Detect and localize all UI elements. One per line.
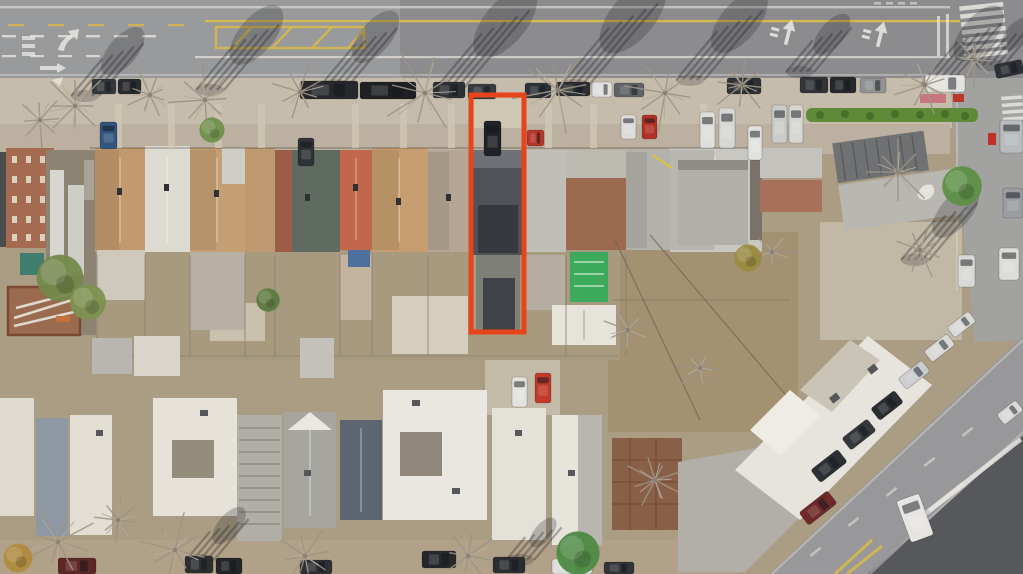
roof-gray-1 [524,150,566,252]
green-shed [570,252,608,302]
green-tree [942,166,982,206]
roof-tan-3 [245,148,275,252]
corner-roof-salmon [760,180,822,212]
parked-car [642,115,657,139]
parked-car [958,255,975,287]
green-tree [199,117,224,142]
parked-car [216,558,242,574]
parked-car [300,560,332,574]
parked-car [719,108,735,148]
trailer [50,170,64,265]
left-brick-building [0,148,54,248]
parked-car [484,121,501,156]
parked-car [1003,188,1023,218]
parked-car [789,105,803,143]
parked-car [700,112,715,148]
parked-car [800,77,828,93]
red-corner-object [953,94,964,102]
rowhouse-roofs [90,146,762,255]
parked-car [118,79,141,94]
parked-car [58,558,96,574]
vacant-lot [608,232,798,432]
parked-car [830,77,856,93]
parked-car [748,126,762,160]
dark-shed [483,278,515,330]
rust-flat-roof [612,438,682,530]
parked-car [772,105,787,143]
lane-text-marks [22,36,35,56]
green-tree [735,245,762,272]
parked-car [185,556,213,573]
blue-tarp [348,250,370,267]
parked-car [92,79,116,94]
parked-car [493,557,525,573]
curb-line-top [0,6,950,8]
parked-car [614,83,644,97]
parked-car [535,373,551,403]
aerial-scene [0,0,1023,574]
parked-car [592,82,612,97]
parked-car [621,115,636,139]
hydrant [988,133,996,145]
parked-car [860,78,886,93]
aerial-photo [0,0,1023,574]
corner-roof-gray [678,160,748,245]
white-lane-line [195,56,950,58]
parked-car [298,138,314,166]
parked-car [100,122,117,149]
green-tree [256,288,279,311]
parked-car [527,130,544,146]
green-tree [70,284,106,320]
eave-shadow [90,147,762,149]
parked-car [512,377,527,407]
parked-car [604,562,634,574]
parked-car [999,248,1019,280]
blue-flat-roof [36,418,68,536]
parked-car [360,82,416,99]
green-tree [556,531,599,574]
right-driveway-apron [820,222,962,340]
parked-car [1000,120,1023,153]
green-tree [4,544,33,573]
patio-pad [392,296,468,354]
